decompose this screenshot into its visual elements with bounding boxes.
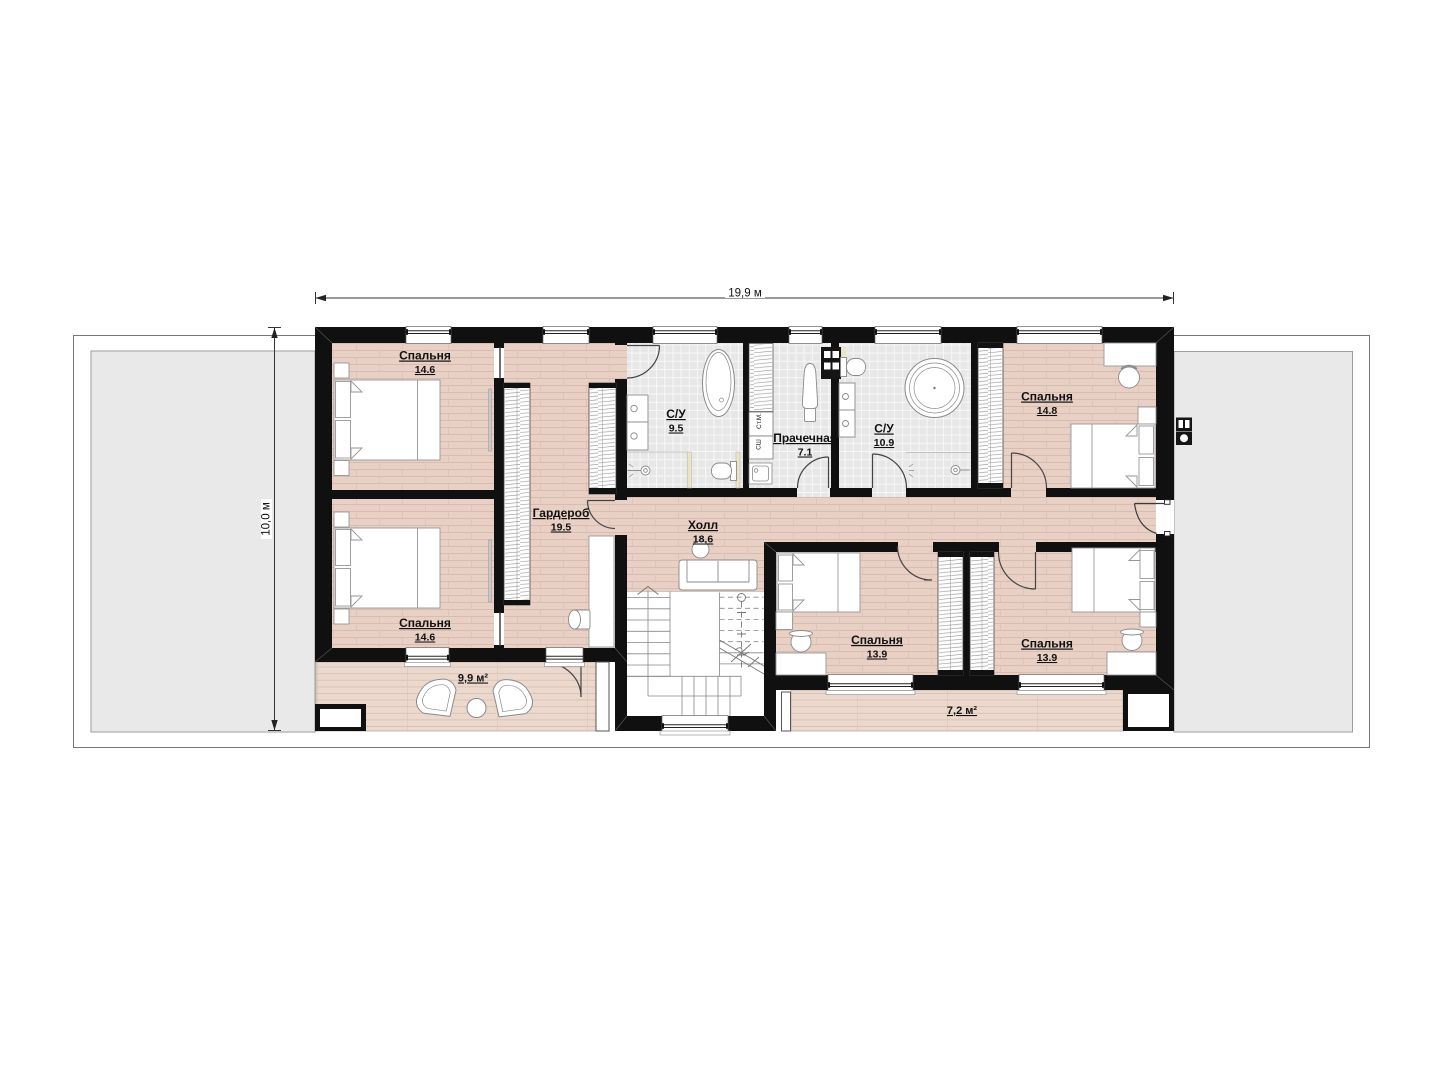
svg-text:Холл: Холл <box>688 518 718 532</box>
svg-text:18.6: 18.6 <box>693 534 714 546</box>
svg-text:9,9 м²: 9,9 м² <box>458 673 488 685</box>
svg-text:Спальня: Спальня <box>399 616 451 630</box>
svg-text:Спальня: Спальня <box>1021 390 1073 404</box>
svg-text:19,9 м: 19,9 м <box>728 288 762 300</box>
svg-text:10,0 м: 10,0 м <box>261 502 273 536</box>
svg-text:14.6: 14.6 <box>415 632 436 644</box>
svg-text:14.6: 14.6 <box>415 364 436 376</box>
svg-text:Прачечная: Прачечная <box>773 431 837 445</box>
svg-text:Ст.М.: Ст.М. <box>756 413 763 429</box>
svg-text:9.5: 9.5 <box>669 423 684 435</box>
svg-text:Спальня: Спальня <box>851 633 903 647</box>
svg-text:13.9: 13.9 <box>867 649 888 661</box>
svg-text:Спальня: Спальня <box>399 349 451 363</box>
svg-text:7.1: 7.1 <box>798 447 813 459</box>
svg-text:С/У: С/У <box>666 407 686 421</box>
svg-text:Спальня: Спальня <box>1021 637 1073 651</box>
svg-text:С/У: С/У <box>874 422 894 436</box>
svg-text:10.9: 10.9 <box>874 437 895 449</box>
svg-text:14.8: 14.8 <box>1037 405 1058 417</box>
svg-text:13.9: 13.9 <box>1037 652 1058 664</box>
svg-text:7,2 м²: 7,2 м² <box>947 705 977 717</box>
svg-text:19.5: 19.5 <box>551 522 572 534</box>
svg-text:СШ: СШ <box>756 439 763 450</box>
svg-text:Гардероб: Гардероб <box>533 506 590 520</box>
